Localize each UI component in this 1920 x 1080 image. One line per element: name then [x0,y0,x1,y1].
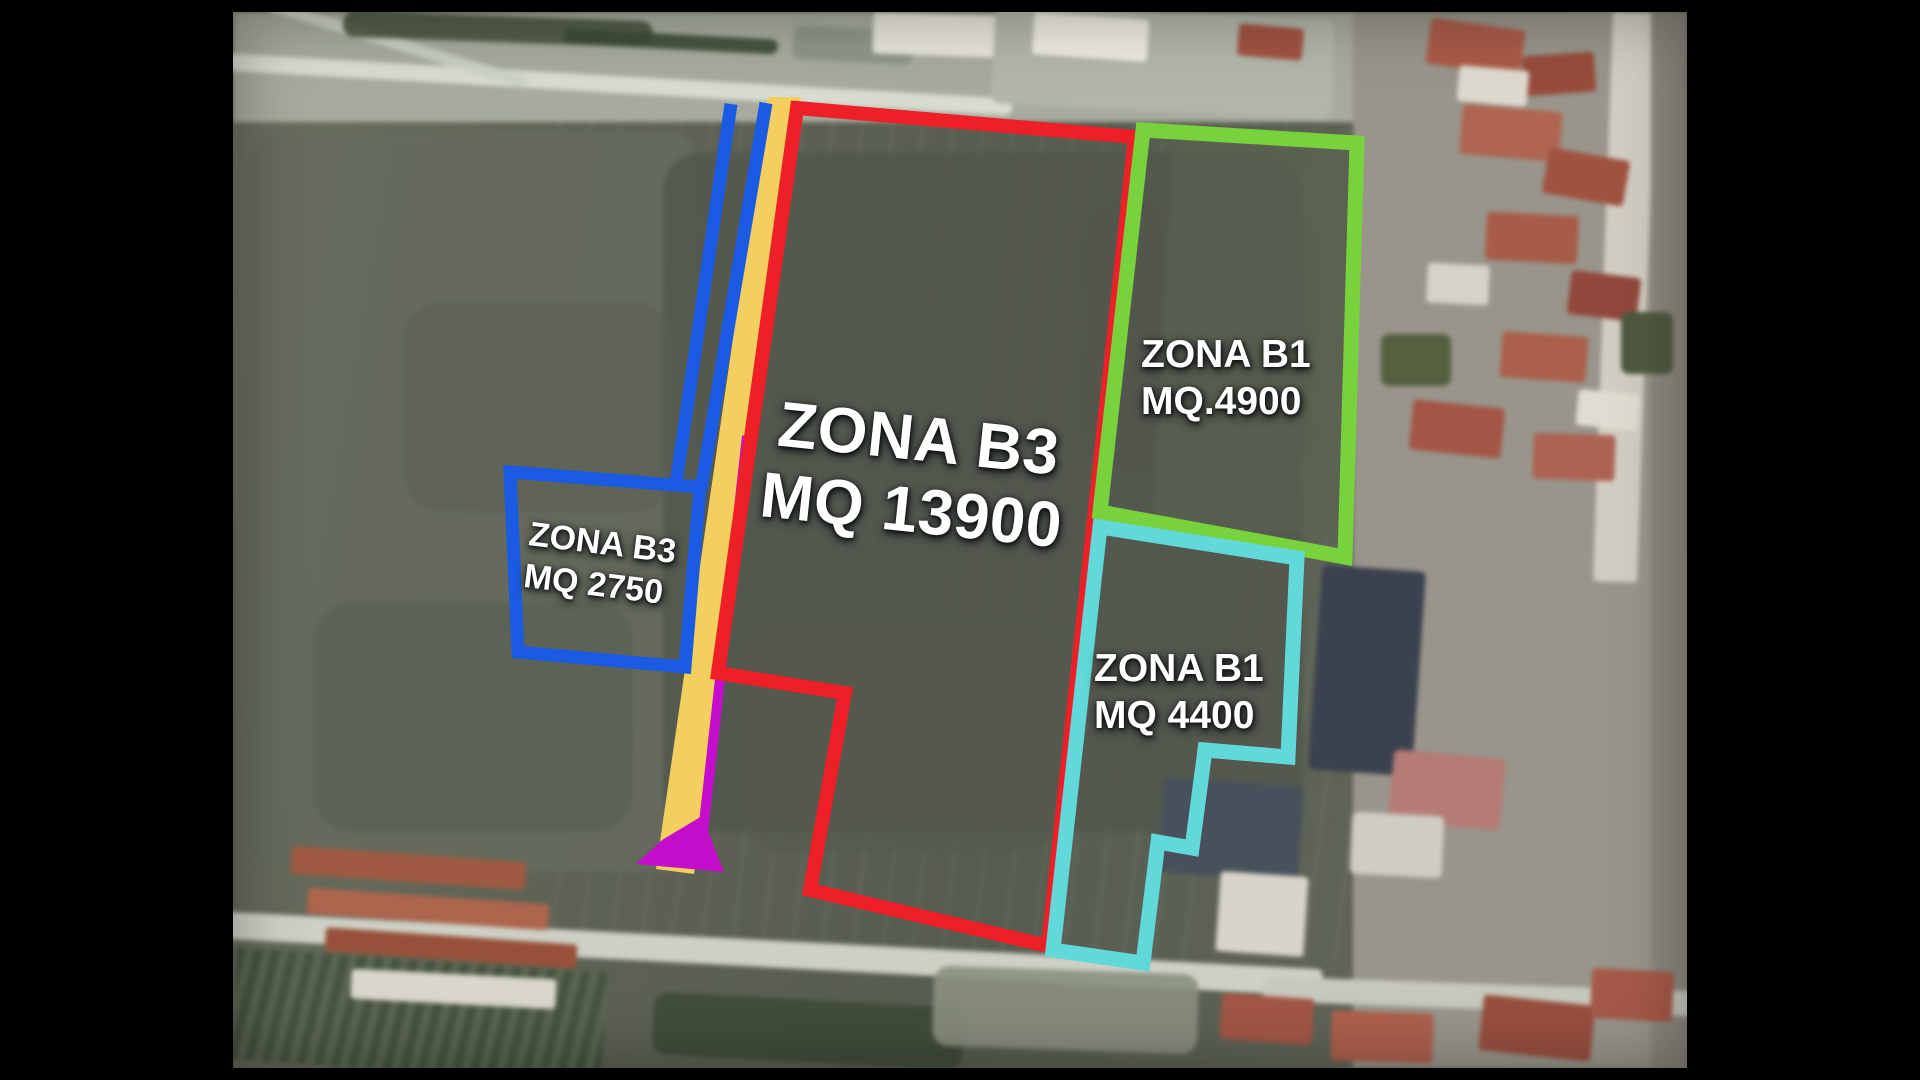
photo-feature [652,992,965,1068]
photo-feature [1381,334,1451,386]
zone-area: MQ.4900 [1141,378,1311,425]
photo-feature [1575,389,1640,431]
site-plan-image: ZONA B3 MQ 13900 ZONA B1 MQ.4900 ZONA B1… [0,0,1920,1080]
photo-feature [1308,565,1426,777]
photo-feature [743,622,1063,852]
zone-area: MQ 4400 [1094,692,1264,739]
zone-name: ZONA B1 [1094,645,1264,692]
photo-feature [932,965,1200,1054]
photo-feature [1220,993,1315,1045]
zone-label-b1-upper: ZONA B1 MQ.4900 [1141,331,1311,425]
photo-feature [1485,212,1579,265]
photo-feature [313,602,633,832]
zone-name: ZONA B1 [1141,331,1311,378]
photo-feature [1349,812,1444,879]
zone-label-b1-lower: ZONA B1 MQ 4400 [1094,645,1264,739]
photo-feature [1478,994,1595,1061]
photo-feature [1426,262,1490,305]
photo-feature [1532,433,1616,482]
zone-label-b3-small: ZONA B3 MQ 2750 [521,513,678,614]
photo-feature [1215,871,1308,957]
photo-feature [1621,312,1673,374]
photo-feature [1651,12,1687,1068]
photo-feature [1409,399,1506,458]
photo-feature [1237,23,1305,61]
photo-feature [1500,331,1589,383]
photo-feature [1590,968,1675,1022]
photo-feature [1032,12,1150,62]
photo-feature [1330,1010,1434,1064]
photo-feature [403,302,673,512]
photo-feature [1522,52,1597,97]
photo-feature [1457,65,1530,107]
photo-feature [1158,777,1304,882]
